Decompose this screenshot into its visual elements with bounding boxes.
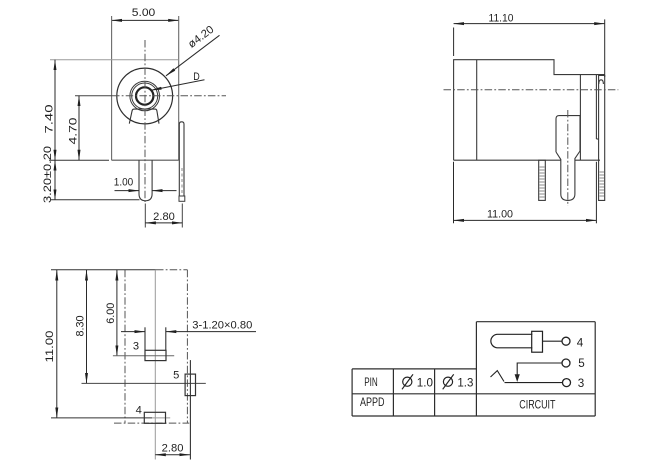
svg-text:4: 4 <box>136 404 142 416</box>
svg-text:3: 3 <box>578 376 585 390</box>
svg-text:1.3: 1.3 <box>457 375 473 389</box>
svg-text:5.00: 5.00 <box>132 7 156 19</box>
svg-text:4.70: 4.70 <box>68 118 80 145</box>
svg-text:2.80: 2.80 <box>162 442 184 454</box>
svg-text:1.0: 1.0 <box>417 375 434 389</box>
svg-text:8.30: 8.30 <box>75 316 87 337</box>
svg-text:CIRCUIT: CIRCUIT <box>519 398 556 412</box>
svg-text:1.00: 1.00 <box>114 177 134 189</box>
svg-text:11.10: 11.10 <box>489 12 514 24</box>
svg-text:5: 5 <box>578 356 585 370</box>
svg-text:7.40: 7.40 <box>44 105 56 134</box>
svg-text:3: 3 <box>133 341 139 353</box>
svg-text:11.00: 11.00 <box>44 331 56 363</box>
svg-text:4: 4 <box>577 335 584 349</box>
svg-text:2.80: 2.80 <box>153 211 175 223</box>
svg-text:6.00: 6.00 <box>105 303 117 324</box>
svg-text:3.20±0.20: 3.20±0.20 <box>42 146 54 203</box>
svg-text:ø4.20: ø4.20 <box>186 24 216 51</box>
svg-text:APPD: APPD <box>360 395 385 409</box>
svg-text:PIN: PIN <box>364 375 378 389</box>
svg-text:5: 5 <box>173 369 179 381</box>
svg-text:D: D <box>193 71 200 83</box>
svg-text:11.00: 11.00 <box>487 209 513 221</box>
svg-text:3-1.20×0.80: 3-1.20×0.80 <box>192 319 252 331</box>
